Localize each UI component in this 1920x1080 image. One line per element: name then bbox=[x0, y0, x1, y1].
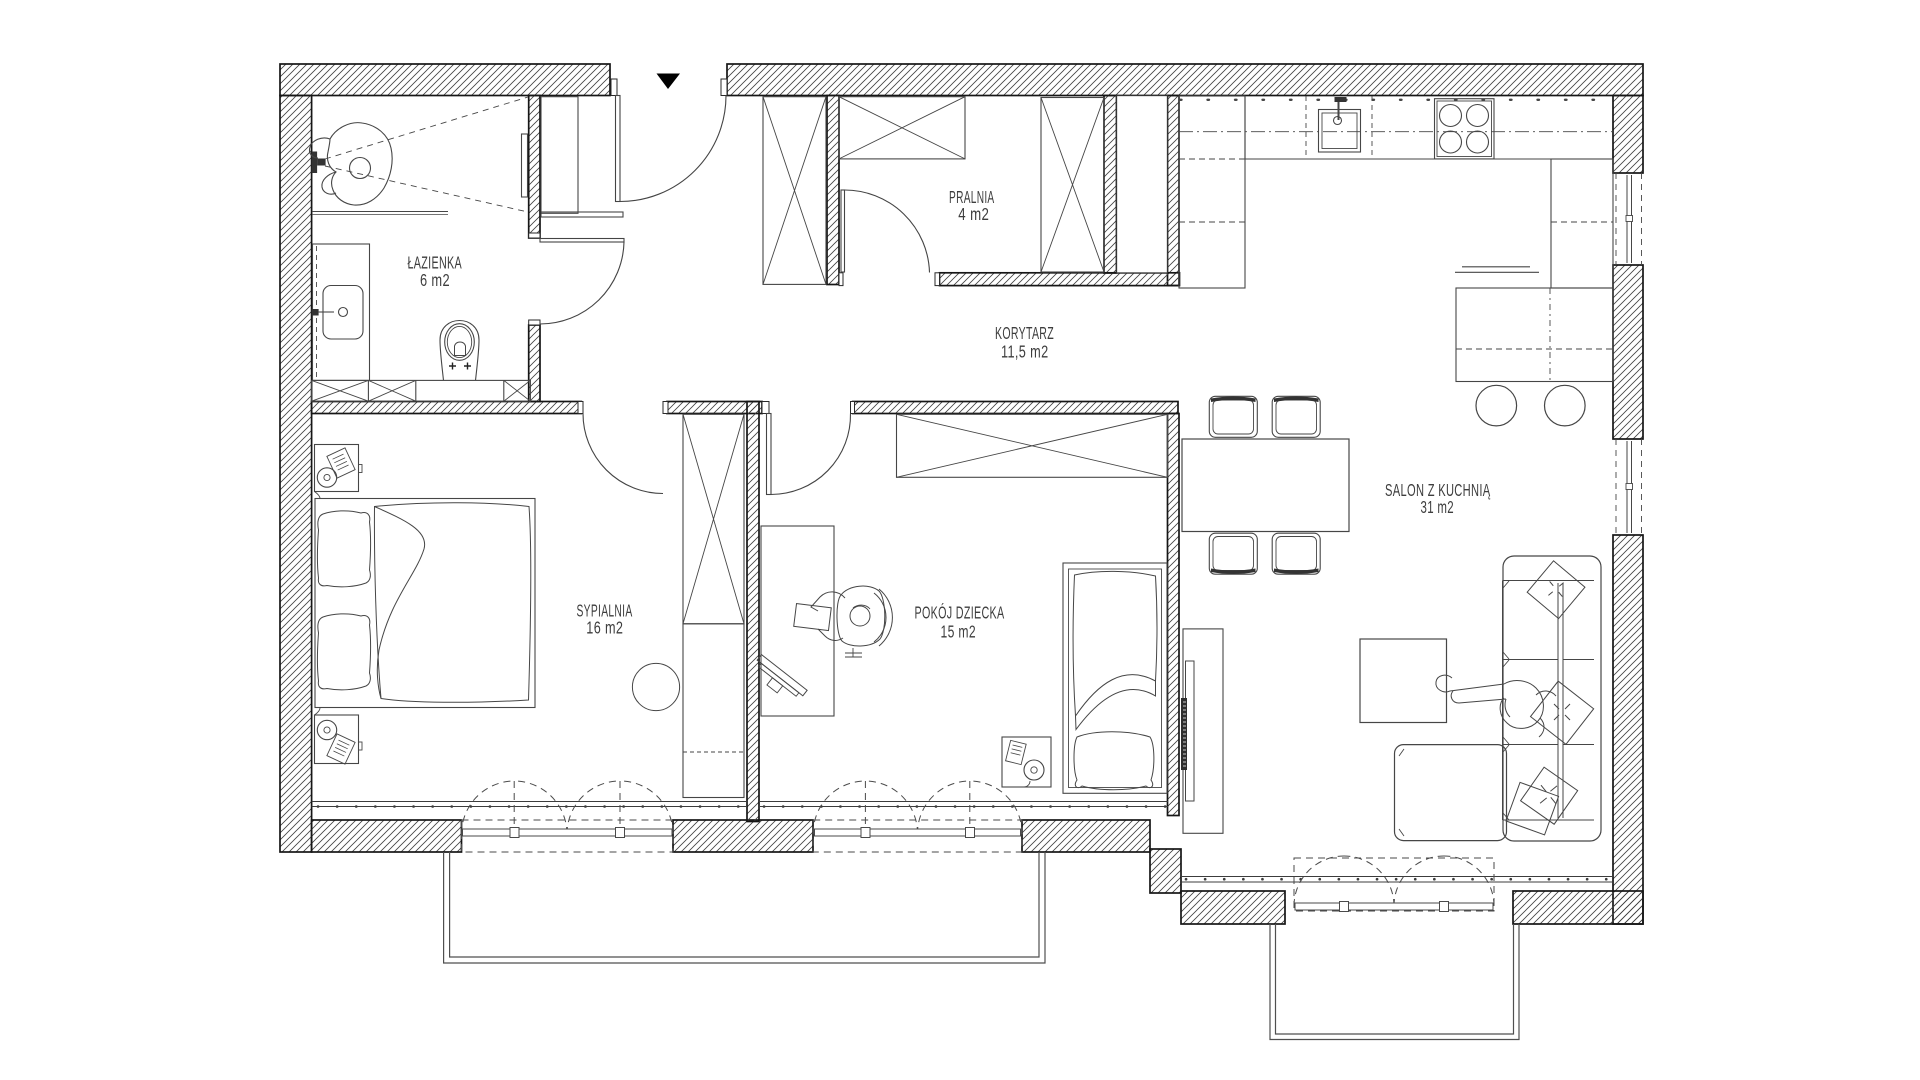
svg-text:11,5 m2: 11,5 m2 bbox=[1001, 342, 1049, 362]
svg-text:6 m2: 6 m2 bbox=[420, 270, 450, 290]
svg-text:POKÓJ DZIECKA: POKÓJ DZIECKA bbox=[915, 602, 1005, 623]
svg-text:31 m2: 31 m2 bbox=[1421, 497, 1455, 517]
svg-text:16 m2: 16 m2 bbox=[586, 618, 623, 638]
svg-text:15 m2: 15 m2 bbox=[941, 622, 977, 642]
svg-text:KORYTARZ: KORYTARZ bbox=[995, 323, 1054, 343]
svg-text:4 m2: 4 m2 bbox=[958, 204, 989, 224]
